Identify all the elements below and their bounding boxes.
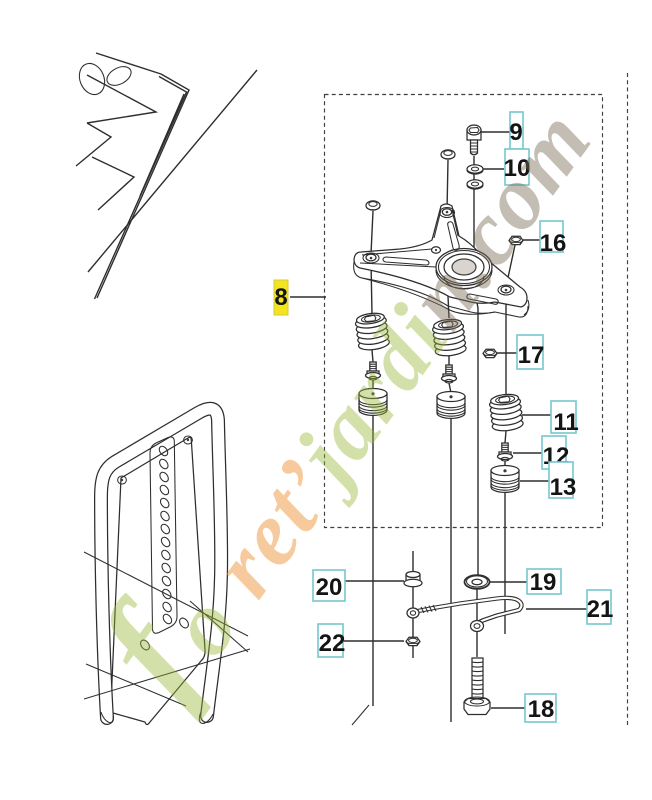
svg-text:21: 21: [587, 596, 614, 623]
svg-text:20: 20: [316, 574, 343, 601]
svg-text:11: 11: [553, 409, 578, 436]
svg-text:17: 17: [518, 342, 545, 369]
svg-text:19: 19: [530, 569, 557, 596]
svg-text:18: 18: [528, 696, 555, 723]
svg-text:13: 13: [550, 474, 577, 501]
svg-text:8: 8: [274, 284, 287, 311]
svg-text:22: 22: [319, 630, 346, 657]
